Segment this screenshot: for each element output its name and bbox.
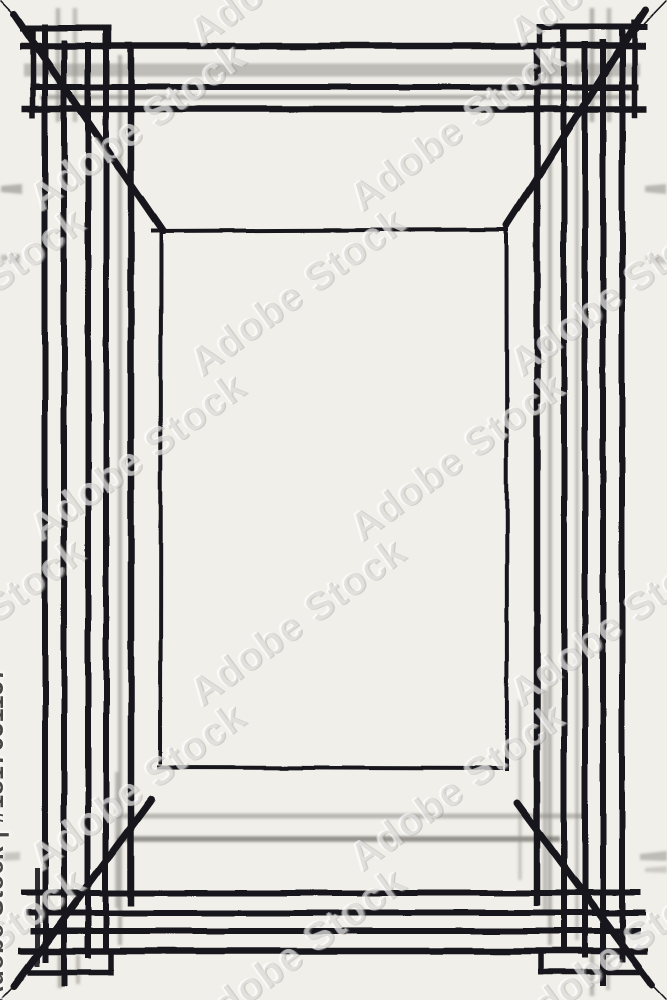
- stock-image-frame-illustration: Adobe StockAdobe StockAdobe StockAdobe S…: [0, 0, 667, 1000]
- inner-rectangle: [151, 226, 509, 771]
- frame-graphic: [0, 0, 667, 1000]
